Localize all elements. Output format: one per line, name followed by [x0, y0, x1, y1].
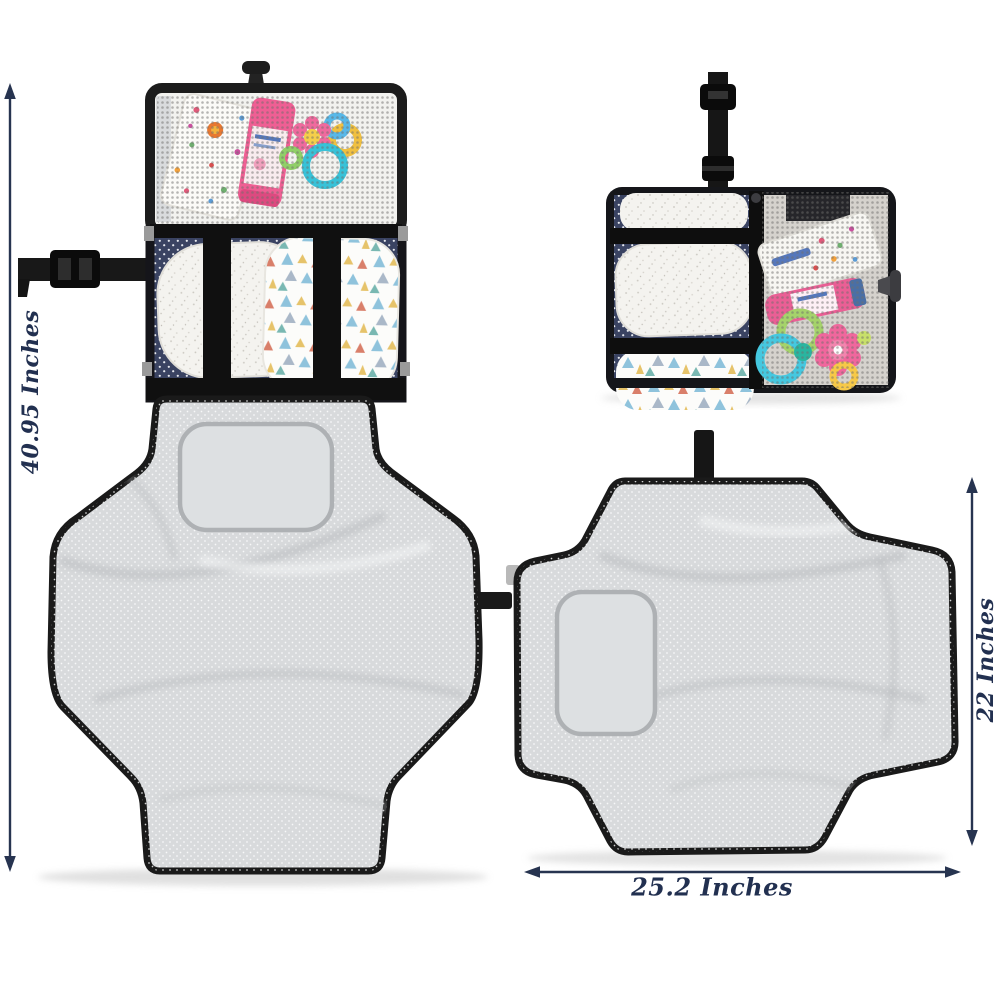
head-pillow [180, 424, 332, 530]
mesh-pocket-panel [150, 88, 402, 232]
changing-mat-open-horizontal [506, 430, 955, 852]
elastic-strap [313, 234, 341, 394]
arrow-left-icon [524, 866, 540, 878]
strap-slider-icon [702, 156, 734, 181]
elastic-strap [610, 338, 760, 354]
organizer-diaper-side [610, 193, 760, 410]
changing-mat-open [51, 399, 479, 871]
open-width-dimension-label: 25.2 Inches [631, 873, 793, 902]
elastic-strap [203, 234, 231, 394]
waist-strap [18, 250, 154, 297]
open-height-dimension-label: 22 Inches [973, 598, 999, 723]
arrow-down-icon [966, 830, 978, 846]
diaper-white [614, 241, 753, 338]
strap-buckle-icon [700, 84, 736, 110]
mesh-overlay [762, 192, 890, 388]
product-dimension-image: 40.95 Inches 22 Inches 25.2 Inches [0, 0, 1000, 1000]
organizer-mesh-side [756, 192, 890, 388]
diaper-storage-panel [142, 224, 410, 400]
open-changing-clutch [18, 61, 512, 871]
hanging-strap [700, 72, 736, 192]
elastic-strap [610, 228, 760, 244]
arrow-down-icon [4, 856, 16, 872]
arrow-right-icon [945, 866, 961, 878]
height-dimension-label: 40.95 Inches [18, 310, 44, 475]
head-pillow [557, 592, 655, 734]
strap-slider-buckle-icon [50, 250, 100, 288]
folded-organizer [606, 72, 901, 410]
product-illustration [0, 0, 1000, 1000]
mesh-overlay [157, 95, 395, 225]
diaper-white [620, 193, 748, 231]
arrow-up-icon [4, 83, 16, 99]
arrow-up-icon [966, 477, 978, 493]
